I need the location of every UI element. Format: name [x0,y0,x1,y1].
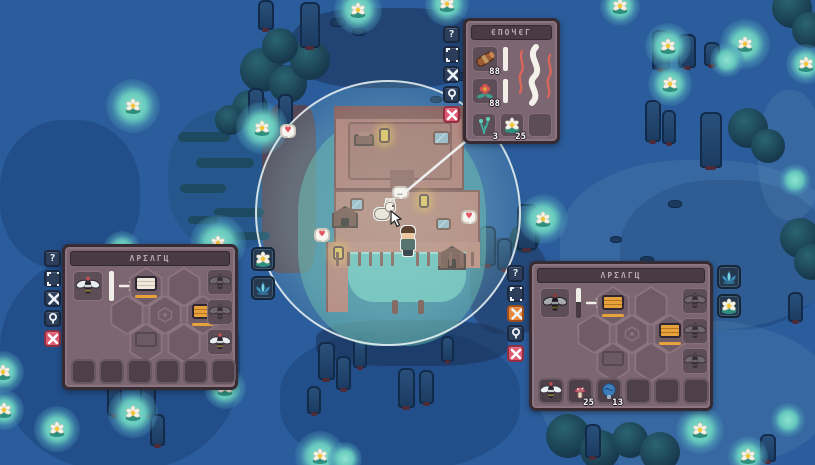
close-button[interactable] [44,330,61,347]
pin-button[interactable] [44,310,61,327]
lily-glow [108,388,158,438]
lily-flower-icon [0,402,13,418]
item-count: 25 [583,398,594,408]
output-slot-empty[interactable] [528,113,552,137]
lily-flower-icon [720,298,738,314]
tree-trunk [307,386,321,414]
lily-glow [648,62,692,106]
lily-flower-icon [438,0,456,12]
reed-strip [180,184,226,193]
tree-trunk [300,2,320,48]
apiary-panel-title: ΛΡΣΛΓЦ [537,268,705,283]
bee-queue-slot[interactable] [207,329,233,355]
tree-trunk [336,356,351,390]
bee-queue-slot[interactable] [682,288,708,314]
tree-trunk [441,336,454,362]
bee-icon [540,380,562,402]
lily-glow [34,406,80,452]
fuel-slot[interactable]: 88 [472,46,498,72]
lily-flower-icon [0,364,12,380]
hex-marker-icon [157,307,173,323]
reed-strip [196,158,254,168]
tree-trunk [258,0,274,30]
progress-bar [135,295,157,298]
output-slot[interactable]: 25 [500,113,524,137]
apiary-left-side-buttons: ? [44,250,61,347]
resize-button[interactable] [44,270,61,287]
bee-silhouette-icon [684,350,706,372]
resize-button[interactable] [507,285,524,302]
bee-icon [209,331,231,353]
production-gauge [109,271,114,301]
lily-glow [779,164,811,196]
lily-glow [676,406,724,454]
resize-button[interactable] [443,46,460,63]
inventory-slot[interactable] [127,359,152,384]
hive-box-faded-icon [135,332,157,347]
inventory-slot[interactable] [99,359,124,384]
bee-silhouette-icon [684,320,706,342]
bush [792,12,815,48]
fuel-gauge [503,47,508,71]
bee-silhouette-icon [684,290,706,312]
lily-flower-icon [254,251,272,267]
red-flower-item-icon [475,82,495,100]
lily-glow [786,44,815,84]
apiary-right-panel: ΛΡΣΛΓЦ 25 [529,261,713,411]
tree-trunk [700,112,722,168]
close-button[interactable] [507,345,524,362]
hive-box-orange-icon [602,295,624,310]
lily-flower-icon [349,2,367,18]
lily-flower-icon [124,405,142,421]
lily-flower-icon [611,0,629,14]
game-screen: … ♥ ♥ ♥ ? ЄΠΟЧЄΓ 88 88 [0,0,815,465]
move-button[interactable] [443,66,460,83]
move-button[interactable] [44,290,61,307]
output-count: 3 [493,132,498,142]
fuel-timer: 88 [489,99,500,109]
move-button-active[interactable] [507,305,524,322]
bee-input-slot[interactable] [73,271,103,301]
fuel-timer: 88 [489,67,500,77]
lotus-flower-button[interactable] [251,276,275,300]
bee-silhouette-icon [209,271,231,293]
apiary-right-side-buttons: ? [507,265,524,362]
lotus-flower-button[interactable] [717,265,741,289]
lily-glow [771,403,805,437]
player-character[interactable] [398,226,418,257]
fuel-slot[interactable]: 88 [472,78,498,104]
bee-queue-slot[interactable] [207,299,233,325]
lily-glow [518,194,568,244]
output-slot[interactable]: 3 [472,113,496,137]
bush [640,432,680,465]
heart-bubble: ♥ [461,210,477,224]
tree-trunk [585,424,601,458]
progress-bar [659,342,681,345]
lotus-flower-icon [254,281,272,295]
inventory-slot[interactable] [183,359,208,384]
tree-trunk [318,342,335,380]
inventory-slot[interactable]: 13 [596,378,622,404]
lily-flower-icon [659,38,677,54]
help-button[interactable]: ? [44,250,61,267]
progress-bar [602,314,624,317]
inventory-slot[interactable] [71,359,96,384]
inventory-slot[interactable] [211,359,236,384]
production-gauge [576,288,581,318]
lily-flower-icon [534,211,552,227]
tree-trunk [398,368,415,408]
inventory-slot[interactable] [538,378,564,404]
lily-flower-icon [253,120,271,136]
heart-icon: ♥ [466,212,472,222]
tree-trunk [419,370,434,404]
lily-glow [334,0,382,34]
hive-box-orange-icon [659,323,681,338]
fuel-gauge [503,79,508,103]
smoker-side-buttons: ? [443,26,460,123]
lily-glow [328,442,362,465]
inventory-slot[interactable] [683,378,709,404]
lily-flower-icon [48,421,66,437]
bee-queue-slot[interactable] [207,269,233,295]
lily-glow [106,79,160,133]
hex-marker-icon [624,326,640,342]
hive-box-white-icon [135,276,157,291]
water-sprout-item-icon [475,115,493,135]
lily-item-icon [503,117,521,133]
tree-trunk [645,100,661,142]
rock [610,236,622,243]
heart-icon: ♥ [285,126,291,136]
help-button[interactable]: ? [507,265,524,282]
inventory-slot[interactable] [654,378,680,404]
pin-button[interactable] [443,86,460,103]
bee-silhouette-icon [209,301,231,323]
mouse-cursor [389,210,405,228]
reed-strip [178,132,230,142]
lily-glow [600,0,640,26]
inventory-slot[interactable] [155,359,180,384]
lily-glow [0,390,24,430]
heart-bubble: ♥ [280,124,296,138]
apiary-left-panel: ΛΡΣΛΓЦ [62,244,238,390]
inventory-slot[interactable] [625,378,651,404]
smoker-panel-title: ЄΠΟЧЄΓ [471,25,552,40]
lily-flower-icon [691,422,709,438]
lily-flower-icon [661,76,679,92]
hive-box-faded-icon [602,351,624,366]
bush [751,129,785,163]
apiary-panel-title: ΛΡΣΛΓЦ [70,251,230,266]
lily-flower-icon [311,448,329,464]
pin-button[interactable] [507,325,524,342]
smoke-animation [514,43,558,107]
bee-icon [76,274,100,298]
tree-trunk [788,292,803,322]
rock [668,200,682,208]
bee-queue-slot[interactable] [682,318,708,344]
bee-input-slot[interactable] [540,288,570,318]
smoker-panel: ЄΠΟЧЄΓ 88 88 3 25 [463,18,560,144]
bee-icon [543,291,567,315]
inventory-slot[interactable]: 25 [567,378,593,404]
help-button[interactable]: ? [443,26,460,43]
tree-trunk [662,110,676,144]
lily-flower-icon [124,98,142,114]
lily-flower-button[interactable] [717,294,741,318]
bush [262,28,298,64]
close-button[interactable] [443,106,460,123]
heart-icon: ♥ [319,230,325,240]
bee-queue-slot[interactable] [682,348,708,374]
speech-bubble: … [392,186,409,199]
lily-glow [710,43,744,77]
lily-flower-icon [739,448,757,464]
lily-flower-button[interactable] [251,247,275,271]
speech-dots: … [397,191,403,195]
lily-glow [0,351,24,393]
output-count: 25 [515,132,526,142]
lily-flower-icon [797,56,815,72]
lotus-flower-icon [720,270,738,284]
item-count: 13 [612,398,623,408]
heart-bubble: ♥ [314,228,330,242]
